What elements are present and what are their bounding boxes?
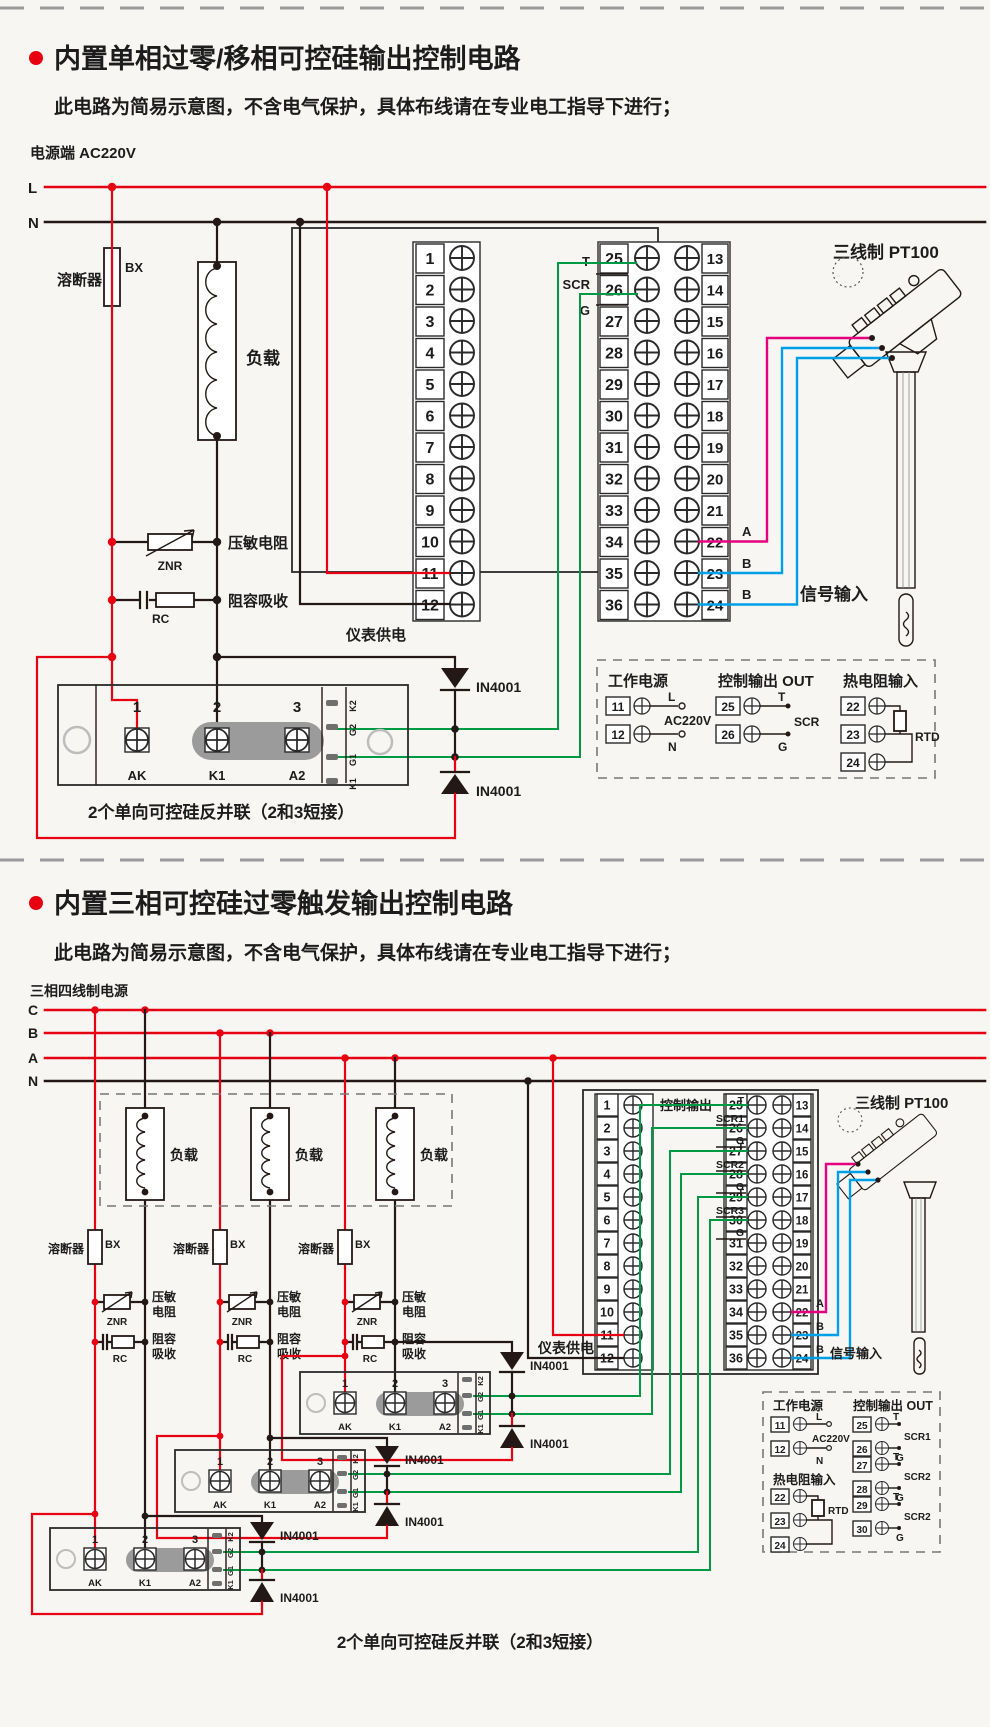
load-box: [251, 1108, 289, 1200]
screw-terminal: [773, 1349, 791, 1367]
junction-dot: [384, 1471, 391, 1478]
ssr-pad-label: K1: [209, 768, 226, 783]
ssr-side-label: K2: [351, 1454, 360, 1464]
fuse-code: BX: [105, 1239, 121, 1251]
diode-label: IN4001: [405, 1515, 444, 1529]
legend-tag-g: G: [896, 1533, 904, 1544]
wiring-diagram-page: 内置单相过零/移相可控硅输出控制电路 此电路为简易示意图，不含电气保护，具体布线…: [0, 0, 990, 1727]
legend-out-title: 控制输出 OUT: [853, 1398, 933, 1413]
legend-out-title: 控制输出 OUT: [718, 672, 814, 690]
ssr-side-label: G2: [348, 724, 358, 736]
junction-dot: [267, 1339, 274, 1346]
ssr-side-slot: [326, 700, 338, 706]
terminal-number: 16: [796, 1170, 809, 1182]
legend-tag-l: L: [668, 690, 675, 704]
fuse-label: 溶断器: [173, 1241, 210, 1256]
terminal-number: 13: [707, 251, 724, 268]
diode-label: IN4001: [405, 1453, 444, 1467]
screw-terminal: [635, 404, 659, 428]
terminal-number: 1: [604, 1099, 611, 1113]
ssr-pin-number: 3: [192, 1534, 198, 1546]
screw-terminal: [773, 1188, 791, 1206]
terminal-number: 5: [426, 377, 435, 394]
junction-dot: [108, 596, 116, 604]
ssr-side-label: G2: [476, 1392, 485, 1402]
varistor-label: 电阻: [277, 1304, 301, 1319]
fuse-code: BX: [230, 1239, 246, 1251]
screw-terminal: [876, 1522, 889, 1535]
legend-tag-g: G: [778, 740, 787, 754]
legend-voltage: AC220V: [664, 714, 712, 728]
screw-terminal: [794, 1490, 807, 1503]
screw-terminal: [206, 729, 228, 751]
junction-dot: [142, 1299, 149, 1306]
ssr-pin-number: 1: [217, 1456, 223, 1468]
signal-input-label: 信号输入: [830, 1346, 882, 1361]
varistor-code: ZNR: [158, 559, 183, 573]
ssr-side-label: G1: [226, 1566, 235, 1576]
line-l-label: L: [28, 180, 37, 197]
terminal-number: 14: [796, 1124, 809, 1136]
sensor-port-dot: [855, 1161, 860, 1166]
terminal-number: 27: [605, 314, 623, 331]
rc-code: RC: [152, 612, 170, 626]
junction-dot: [509, 1393, 516, 1400]
sensor-title: 三线制 PT100: [833, 242, 939, 262]
terminal-number: 6: [604, 1214, 611, 1228]
varistor-label: 电阻: [152, 1304, 176, 1319]
sensor-port-dot: [869, 335, 875, 341]
ssr-pad-label: A2: [314, 1500, 326, 1511]
ssr-pad-label: AK: [338, 1422, 352, 1433]
junction-dot: [267, 1435, 274, 1442]
ssr-side-slot: [212, 1533, 222, 1538]
wire-b-label: B: [742, 556, 751, 571]
junction-dot: [342, 1353, 349, 1360]
junction-dot: [259, 1549, 266, 1556]
screw-terminal: [386, 1394, 405, 1413]
ssr-side-label: G1: [348, 754, 358, 766]
terminal-number: 20: [707, 472, 724, 489]
screw-terminal: [748, 1303, 766, 1321]
screw-terminal: [773, 1326, 791, 1344]
rc-label: 阻容: [152, 1331, 176, 1346]
rc-code: RC: [363, 1354, 377, 1365]
rc-code: RC: [113, 1354, 127, 1365]
terminal-number: 32: [729, 1260, 743, 1274]
junction-dot: [213, 538, 221, 546]
load-box: [198, 262, 236, 440]
terminal-number: 14: [707, 283, 724, 300]
legend-power-title: 工作电源: [608, 672, 668, 690]
ssr-side-label: G1: [351, 1488, 360, 1498]
ssr-pad-label: AK: [213, 1500, 227, 1511]
junction-dot: [217, 1299, 224, 1306]
legend-terminal: 23: [846, 728, 860, 742]
section2-title: 内置三相可控硅过零触发输出控制电路: [54, 888, 514, 919]
legend-terminal: 26: [856, 1445, 868, 1456]
terminal-number: 32: [605, 472, 623, 489]
ssr-side-slot: [212, 1549, 222, 1554]
legend-rtd-title: 热电阻输入: [773, 1472, 836, 1487]
line-a-label: A: [28, 1050, 38, 1066]
junction-dot: [392, 1339, 399, 1346]
terminal-number: 13: [796, 1101, 809, 1113]
screw-terminal: [635, 561, 659, 585]
ssr-side-label: K1: [226, 1580, 235, 1590]
screw-terminal: [744, 726, 760, 742]
screw-terminal: [675, 372, 699, 396]
legend-terminal: 27: [856, 1461, 868, 1472]
junction-dot: [392, 1189, 399, 1196]
terminal-number: 24: [707, 598, 724, 615]
junction-dot: [213, 432, 221, 440]
terminal-number: 2: [426, 283, 435, 300]
section2-subtitle: 此电路为简易示意图，不含电气保护，具体布线请在专业电工指导下进行；: [54, 941, 681, 964]
ssr-side-slot: [337, 1471, 347, 1476]
screw-terminal: [450, 341, 474, 365]
wire-a-label: A: [816, 1298, 824, 1310]
legend-tag-t: T: [778, 690, 786, 704]
screw-terminal: [748, 1257, 766, 1275]
diode-label: IN4001: [476, 783, 521, 799]
legend-terminal: 25: [721, 700, 735, 714]
screw-terminal: [635, 341, 659, 365]
fuse-label: 溶断器: [298, 1241, 335, 1256]
terminal-number: 8: [426, 472, 435, 489]
varistor-symbol: [148, 534, 192, 550]
screw-terminal: [675, 530, 699, 554]
section1-subtitle: 此电路为简易示意图，不含电气保护，具体布线请在专业电工指导下进行；: [54, 95, 681, 118]
line-c-label: C: [28, 1002, 38, 1018]
ssr-side-slot: [337, 1455, 347, 1460]
junction-dot: [342, 1339, 349, 1346]
legend-terminal: 29: [856, 1501, 868, 1512]
screw-terminal: [869, 726, 885, 742]
junction-dot: [213, 653, 221, 661]
terminal-number: 1: [426, 251, 435, 268]
terminal-number: 33: [729, 1283, 743, 1297]
section1-bullet: [29, 51, 43, 65]
load-box: [126, 1108, 164, 1200]
ssr-side-label: K1: [476, 1424, 485, 1434]
legend-tag-l: L: [816, 1412, 822, 1423]
ssr-pin-number: 2: [213, 699, 221, 716]
load-box: [376, 1108, 414, 1200]
screw-terminal: [635, 435, 659, 459]
screw-terminal: [186, 1550, 205, 1569]
screw-terminal: [876, 1458, 889, 1471]
terminal-number: 7: [604, 1237, 611, 1251]
varistor-label: 压敏: [402, 1289, 427, 1304]
ssr-side-slot: [326, 754, 338, 760]
terminal-number: 31: [605, 440, 623, 457]
rc-label: 阻容: [277, 1331, 301, 1346]
terminal-number: 3: [426, 314, 435, 331]
legend-terminal: 12: [774, 1445, 786, 1456]
screw-terminal: [634, 726, 650, 742]
rc-resistor: [112, 1336, 134, 1348]
rc-resistor: [156, 593, 194, 607]
terminal-number: 3: [604, 1145, 611, 1159]
screw-terminal: [773, 1119, 791, 1137]
terminal-number: 23: [707, 566, 724, 583]
rc-resistor: [362, 1336, 384, 1348]
ssr-pin-number: 1: [92, 1534, 98, 1546]
screw-terminal: [450, 435, 474, 459]
screw-terminal: [748, 1165, 766, 1183]
screw-terminal: [635, 593, 659, 617]
screw-terminal: [675, 593, 699, 617]
legend-tag-n: N: [816, 1456, 823, 1467]
screw-terminal: [748, 1096, 766, 1114]
junction-dot: [267, 1113, 274, 1120]
screw-terminal: [876, 1498, 889, 1511]
terminal-number: 12: [421, 598, 439, 615]
load-label: 负载: [420, 1147, 448, 1163]
screw-terminal: [675, 341, 699, 365]
terminal-number: 15: [707, 314, 724, 331]
terminal-number: 33: [605, 503, 623, 520]
junction-dot: [142, 1339, 149, 1346]
terminal-number: 9: [604, 1283, 611, 1297]
rc-label: 阻容吸收: [228, 592, 288, 610]
legend-terminal: 26: [721, 728, 735, 742]
sensor-port-dot: [889, 355, 895, 361]
terminal-number: 16: [707, 346, 724, 363]
screw-terminal: [794, 1418, 807, 1431]
power-source-label: 三相四线制电源: [30, 983, 128, 999]
ssr-side-label: K2: [476, 1376, 485, 1386]
power-source-label: 电源端 AC220V: [30, 144, 136, 162]
varistor-code: ZNR: [232, 1317, 253, 1328]
sensor-title: 三线制 PT100: [855, 1094, 948, 1112]
sensor-port-dot: [875, 1177, 880, 1182]
diode-label: IN4001: [280, 1529, 319, 1543]
terminal-number: 34: [729, 1306, 743, 1320]
signal-input-label: 信号输入: [800, 584, 868, 604]
fuse-code: BX: [125, 260, 143, 275]
screw-terminal: [126, 729, 148, 751]
terminal-number: 19: [796, 1239, 809, 1251]
meter-supply-label: 仪表供电: [345, 626, 406, 644]
diode-label: IN4001: [530, 1359, 569, 1373]
screw-terminal: [675, 278, 699, 302]
terminal-number: 18: [707, 409, 724, 426]
ssr-pad-label: K1: [139, 1578, 152, 1589]
screw-terminal: [261, 1472, 280, 1491]
screw-terminal: [635, 467, 659, 491]
screw-terminal: [748, 1326, 766, 1344]
ssr-side-slot: [212, 1567, 222, 1572]
varistor-code: ZNR: [357, 1317, 378, 1328]
varistor-code: ZNR: [107, 1317, 128, 1328]
junction-dot: [108, 538, 116, 546]
screw-terminal: [773, 1165, 791, 1183]
terminal-number: 25: [605, 251, 623, 268]
screw-terminal: [286, 729, 308, 751]
screw-terminal: [773, 1303, 791, 1321]
junction-dot: [92, 1339, 99, 1346]
terminal-number: 28: [605, 346, 623, 363]
ssr-pad-label: K1: [264, 1500, 277, 1511]
screw-terminal: [450, 467, 474, 491]
fuse-label: 溶断器: [57, 271, 103, 289]
junction-dot: [392, 1113, 399, 1120]
sensor-port-dot: [865, 1169, 870, 1174]
ssr-pin-number: 1: [342, 1378, 348, 1390]
legend-voltage: AC220V: [812, 1434, 850, 1445]
section2-bullet: [29, 896, 43, 910]
legend-terminal: 12: [611, 728, 625, 742]
legend-terminal: 23: [774, 1517, 786, 1528]
rc-label: 吸收: [152, 1346, 176, 1361]
ssr-side-label: K1: [348, 778, 358, 790]
ssr-pad-label: AK: [128, 768, 147, 783]
screw-terminal: [675, 561, 699, 585]
ssr-side-label: G2: [226, 1548, 235, 1558]
terminal-number: 21: [796, 1285, 809, 1297]
screw-terminal: [744, 698, 760, 714]
legend-node: [897, 1526, 901, 1530]
screw-terminal: [773, 1234, 791, 1252]
ssr-pad-label: A2: [289, 768, 306, 783]
wire-b-label: B: [816, 1344, 824, 1356]
ssr-pin-number: 2: [142, 1534, 148, 1546]
legend-terminal: 22: [846, 700, 860, 714]
rc-label: 吸收: [402, 1346, 426, 1361]
junction-dot: [342, 1299, 349, 1306]
screw-terminal: [675, 435, 699, 459]
rc-label: 阻容: [402, 1331, 426, 1346]
junction-dot: [217, 1433, 224, 1440]
terminal-number: 29: [605, 377, 623, 394]
junction-dot: [142, 1113, 149, 1120]
terminal-number: 36: [605, 598, 623, 615]
junction-dot: [213, 262, 221, 270]
ssr-side-slot: [462, 1411, 472, 1416]
fuse-code: BX: [355, 1239, 371, 1251]
screw-terminal: [748, 1280, 766, 1298]
section1-title: 内置单相过零/移相可控硅输出控制电路: [54, 43, 522, 74]
ssr-side-slot: [462, 1393, 472, 1398]
ssr-side-slot: [212, 1581, 222, 1586]
legend-terminal: 24: [846, 756, 860, 770]
legend-tag-t: T: [893, 1412, 899, 1423]
terminal-number: 30: [605, 409, 623, 426]
out-label-scr: SCR2: [716, 1159, 744, 1171]
legend-node: [786, 704, 791, 709]
fuse-symbol: [338, 1230, 352, 1264]
ssr-pin-number: 1: [133, 699, 141, 716]
load-label: 负载: [295, 1147, 323, 1163]
legend-node: [897, 1446, 901, 1450]
line-n-label: N: [28, 1073, 38, 1089]
wire-b-label: B: [816, 1321, 824, 1333]
line-n-label: N: [28, 215, 39, 232]
screw-terminal: [211, 1472, 230, 1491]
junction-dot: [392, 1299, 399, 1306]
terminal-number: 4: [604, 1168, 611, 1182]
junction-dot: [267, 1189, 274, 1196]
terminal-number: 22: [707, 535, 724, 552]
legend-tag-t: T: [893, 1452, 899, 1463]
screw-terminal: [675, 467, 699, 491]
terminal-number: 18: [796, 1216, 809, 1228]
ssr-side-label: K2: [226, 1532, 235, 1542]
screw-terminal: [450, 498, 474, 522]
screw-terminal: [635, 498, 659, 522]
screw-terminal: [436, 1394, 455, 1413]
terminal-number: 17: [707, 377, 724, 394]
junction-dot: [217, 1339, 224, 1346]
rc-label: 吸收: [277, 1346, 301, 1361]
legend-terminal: 30: [856, 1525, 868, 1536]
screw-terminal: [450, 309, 474, 333]
legend-tag-scr: SCR1: [904, 1432, 931, 1443]
ssr-pin-number: 2: [267, 1456, 273, 1468]
terminal-number: 20: [796, 1262, 809, 1274]
screw-terminal: [86, 1550, 105, 1569]
screw-terminal: [635, 278, 659, 302]
screw-terminal: [635, 309, 659, 333]
legend-tag-n: N: [668, 740, 677, 754]
terminal-number: 2: [604, 1122, 611, 1136]
screw-terminal: [336, 1394, 355, 1413]
terminal-number: 23: [796, 1331, 809, 1343]
terminal-number: 11: [422, 566, 439, 583]
terminal-number: 7: [426, 440, 435, 457]
ssr-side-label: K1: [351, 1502, 360, 1512]
screw-terminal: [773, 1142, 791, 1160]
out-label-g: G: [736, 1227, 744, 1239]
screw-terminal: [773, 1257, 791, 1275]
ssr-pad-label: A2: [189, 1578, 201, 1589]
terminal-number: 10: [600, 1306, 614, 1320]
ssr-side-label: G1: [476, 1410, 485, 1420]
screw-terminal: [450, 530, 474, 554]
legend-power-title: 工作电源: [773, 1398, 824, 1413]
section1-caption: 2个单向可控硅反并联（2和3短接）: [88, 802, 354, 822]
screw-terminal: [450, 593, 474, 617]
screw-terminal: [876, 1482, 889, 1495]
legend-terminal: 11: [775, 1421, 786, 1432]
fuse-symbol: [213, 1230, 227, 1264]
terminal-number: 15: [796, 1147, 809, 1159]
sensor-port-dot: [879, 345, 885, 351]
ssr-pin-number: 3: [293, 699, 301, 716]
junction-dot: [92, 1299, 99, 1306]
fuse-symbol: [88, 1230, 102, 1264]
screw-terminal: [450, 278, 474, 302]
junction-dot: [92, 1511, 99, 1518]
screw-terminal: [869, 698, 885, 714]
legend-tag-t: T: [893, 1492, 899, 1503]
meter-supply-label: 仪表供电: [537, 1340, 594, 1356]
terminal-number: 6: [426, 409, 435, 426]
ssr-side-slot: [326, 724, 338, 730]
screw-terminal: [876, 1418, 889, 1431]
junction-dot: [142, 1513, 149, 1520]
diode-label: IN4001: [280, 1591, 319, 1605]
wire-a-label: A: [742, 524, 752, 539]
screw-terminal: [675, 246, 699, 270]
out-label-scr: SCR1: [716, 1113, 744, 1125]
screw-terminal: [311, 1472, 330, 1491]
legend-rtd-code: RTD: [915, 730, 940, 744]
legend-rtd-resistor: [894, 711, 906, 731]
ssr-side-slot: [337, 1489, 347, 1494]
